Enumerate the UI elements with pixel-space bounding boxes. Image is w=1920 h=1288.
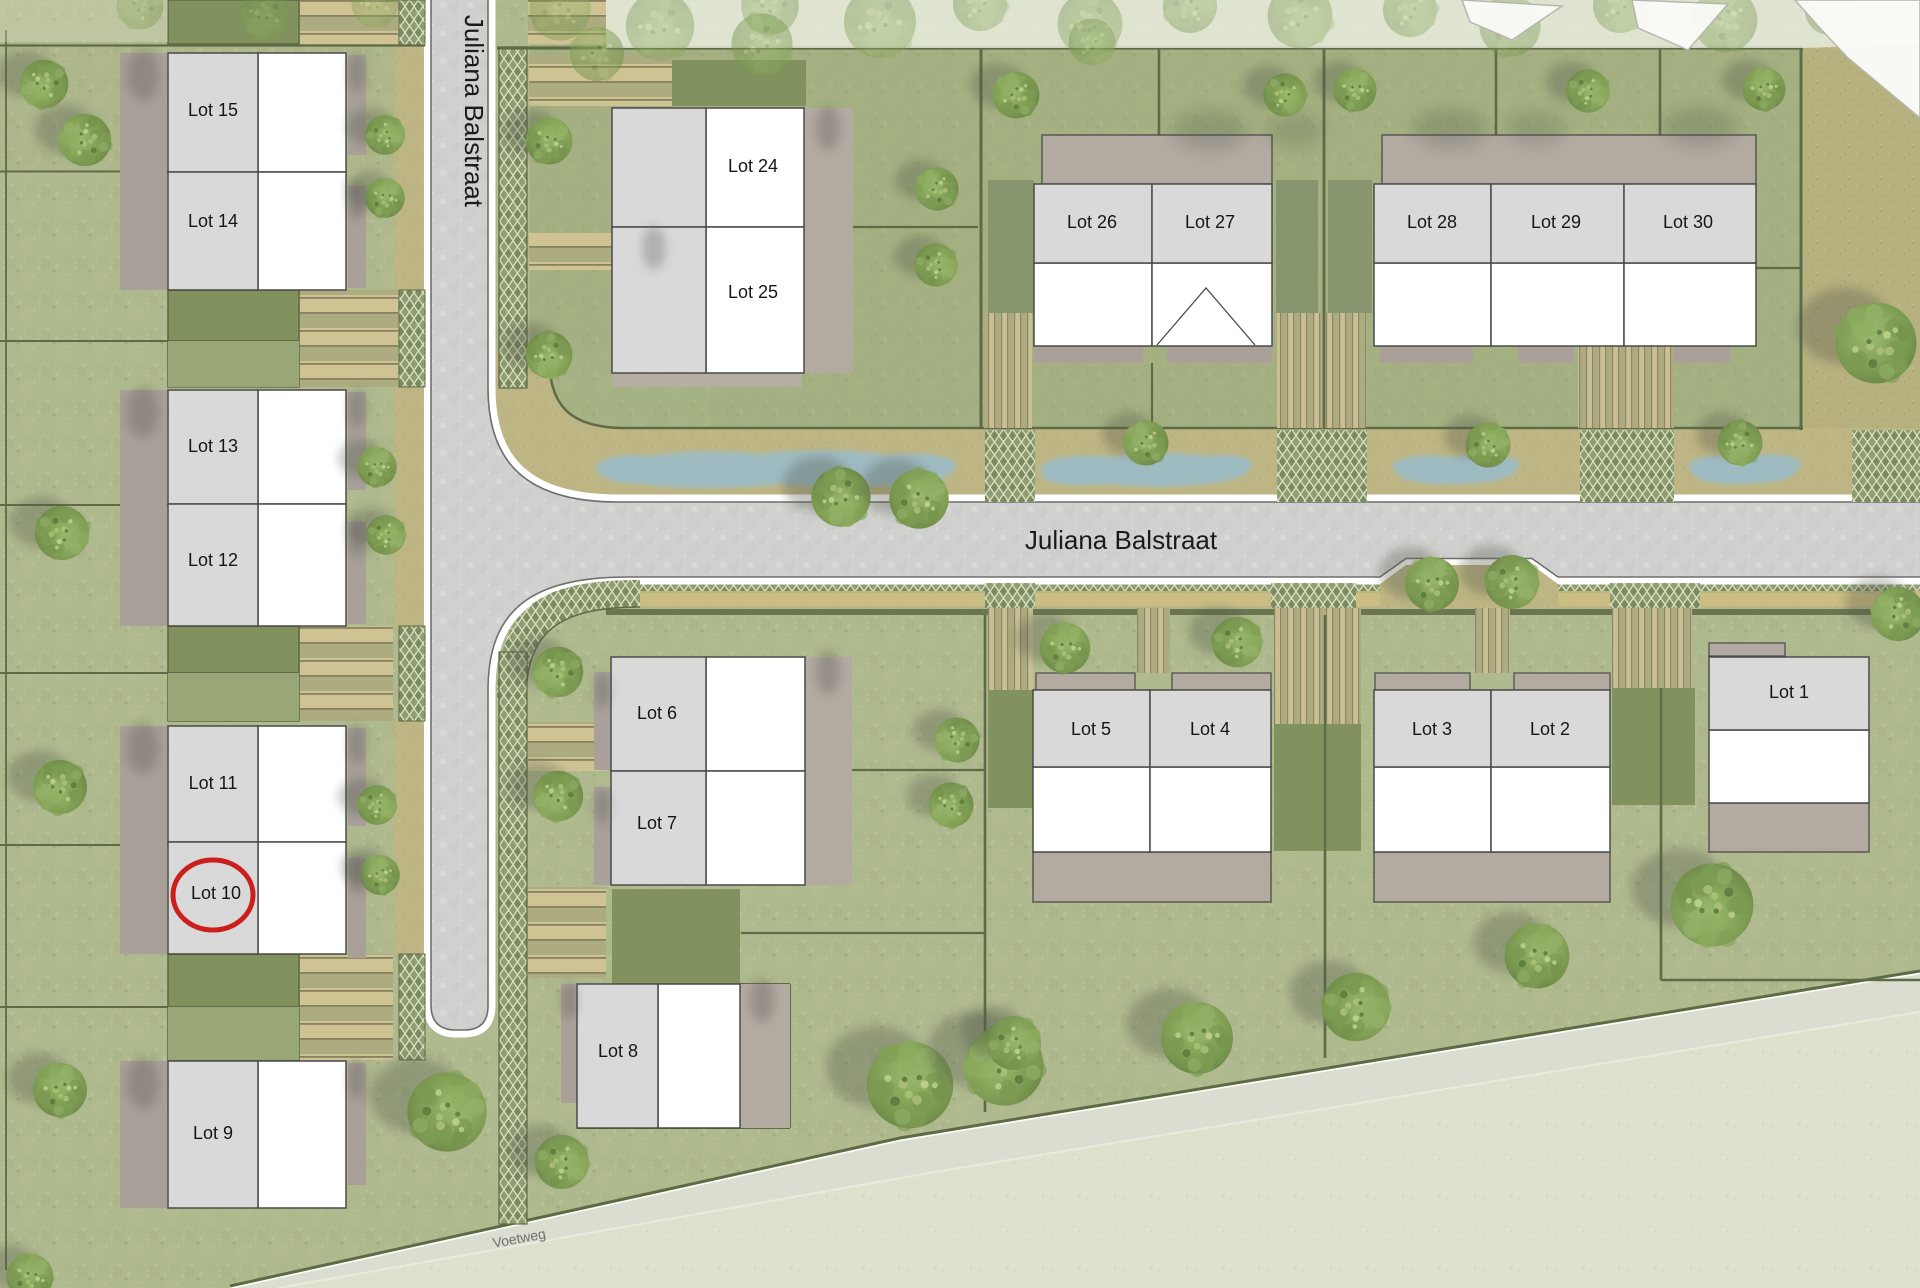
svg-text:Lot 8: Lot 8 [598, 1041, 638, 1061]
svg-text:Juliana Balstraat: Juliana Balstraat [459, 15, 489, 208]
svg-text:Lot 24: Lot 24 [728, 156, 778, 176]
svg-text:Lot 11: Lot 11 [189, 773, 238, 793]
svg-text:Lot 4: Lot 4 [1190, 719, 1230, 739]
svg-text:Lot 27: Lot 27 [1185, 212, 1235, 232]
svg-text:Lot 30: Lot 30 [1663, 212, 1713, 232]
svg-text:Lot 15: Lot 15 [188, 100, 238, 120]
svg-text:Lot 13: Lot 13 [188, 436, 238, 456]
svg-text:Lot 6: Lot 6 [637, 703, 677, 723]
svg-text:Lot 28: Lot 28 [1407, 212, 1457, 232]
svg-text:Lot 1: Lot 1 [1769, 682, 1809, 702]
svg-text:Juliana Balstraat: Juliana Balstraat [1025, 525, 1218, 555]
svg-text:Lot 29: Lot 29 [1531, 212, 1581, 232]
svg-text:Lot 7: Lot 7 [637, 813, 677, 833]
svg-text:Lot 5: Lot 5 [1071, 719, 1111, 739]
svg-text:Lot 10: Lot 10 [191, 883, 241, 903]
svg-text:Lot 9: Lot 9 [193, 1123, 233, 1143]
svg-text:Lot 2: Lot 2 [1530, 719, 1570, 739]
svg-text:Lot 14: Lot 14 [188, 211, 238, 231]
svg-text:Lot 3: Lot 3 [1412, 719, 1452, 739]
svg-text:Lot 25: Lot 25 [728, 282, 778, 302]
svg-text:Lot 12: Lot 12 [188, 550, 238, 570]
svg-text:Lot 26: Lot 26 [1067, 212, 1117, 232]
